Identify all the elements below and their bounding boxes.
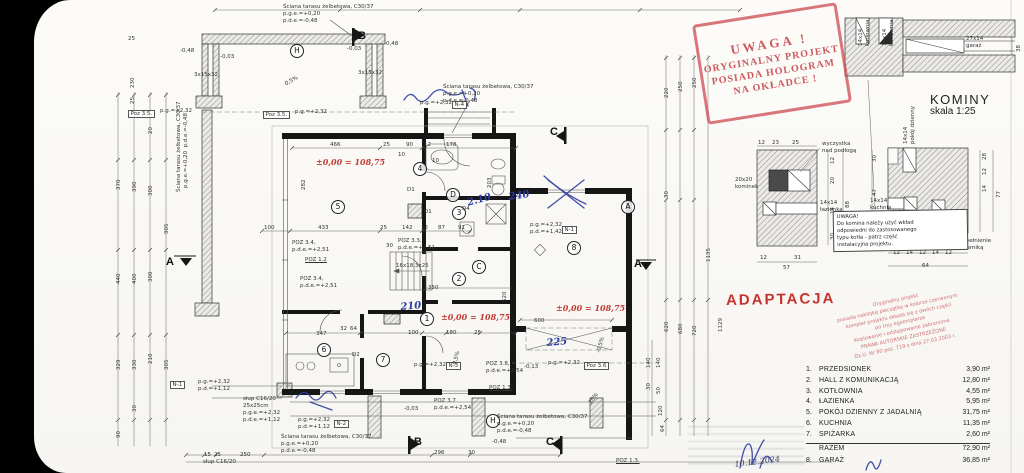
room-number: 7.: [806, 431, 819, 438]
room-name: GARAŻ: [819, 457, 946, 464]
room-area: 12,80 m²: [946, 377, 990, 384]
room-number: 3.: [806, 388, 819, 395]
schedule-extra-rows: 8. GARAŻ 36,85 m²: [806, 457, 990, 468]
schedule-row: 7. SPIŻARKA 2,60 m²: [806, 431, 990, 442]
room-name: SPIŻARKA: [819, 431, 946, 438]
chimney-note-box: UWAGA!Do komina należy użyć wkładodpowie…: [833, 209, 969, 252]
room-area: 11,35 m²: [946, 420, 990, 427]
room-name: KOTŁOWNIA: [819, 388, 946, 395]
chimney-block: [384, 314, 400, 324]
schedule-total-row: RAZEM 72,90 m²: [806, 443, 990, 456]
room-number: 6.: [806, 420, 819, 427]
room-name: POKÓJ DZIENNY Z JADALNIĄ: [819, 409, 946, 416]
room-number: 5.: [806, 409, 819, 416]
schedule-rows: 1. PRZEDSIONEK 3,90 m² 2. HALL Z KOMUNIK…: [806, 366, 990, 442]
scanned-floor-plan-page: { "colors":{"stamp_red":"#c9474d","adapt…: [0, 0, 1024, 473]
schedule-row: 5. POKÓJ DZIENNY Z JADALNIĄ 31,75 m²: [806, 409, 990, 420]
schedule-row: 8. GARAŻ 36,85 m²: [806, 457, 990, 468]
adaptacja-label: ADAPTACJA: [726, 290, 836, 309]
total-area: 72,90 m²: [946, 445, 990, 452]
schedule-row: 6. KUCHNIA 11,35 m²: [806, 420, 990, 431]
schedule-row: 4. ŁAZIENKA 5,95 m²: [806, 398, 990, 409]
room-area: 4,55 m²: [946, 388, 990, 395]
room-number: 4.: [806, 398, 819, 405]
room-name: KUCHNIA: [819, 420, 946, 427]
room-area: 3,90 m²: [946, 366, 990, 373]
room-name: ŁAZIENKA: [819, 398, 946, 405]
chimney-block: [408, 204, 422, 218]
schedule-row: 1. PRZEDSIONEK 3,90 m²: [806, 366, 990, 377]
schedule-row: 3. KOTŁOWNIA 4,55 m²: [806, 388, 990, 399]
room-area: 5,95 m²: [946, 398, 990, 405]
room-number: 2.: [806, 377, 819, 384]
house-walls: [282, 108, 632, 440]
stamp-line: instalacyjna projektu.: [837, 240, 964, 249]
blue-pen-scribbles: [296, 88, 881, 470]
room-area: 31,75 m²: [946, 409, 990, 416]
total-label: RAZEM: [819, 445, 946, 452]
room-number: 1.: [806, 366, 819, 373]
terrace-walls: [195, 34, 603, 438]
room-schedule: 1. PRZEDSIONEK 3,90 m² 2. HALL Z KOMUNIK…: [806, 366, 990, 468]
room-name: PRZEDSIONEK: [819, 366, 946, 373]
room-area: 2,60 m²: [946, 431, 990, 438]
room-area: 36,85 m²: [946, 457, 990, 464]
room-number: 8.: [806, 457, 819, 464]
faded-designer-stamp: [688, 424, 804, 470]
dashed-lines: [202, 112, 656, 363]
room-name: HALL Z KOMUNIKACJĄ: [819, 377, 946, 384]
schedule-row: 2. HALL Z KOMUNIKACJĄ 12,80 m²: [806, 377, 990, 388]
